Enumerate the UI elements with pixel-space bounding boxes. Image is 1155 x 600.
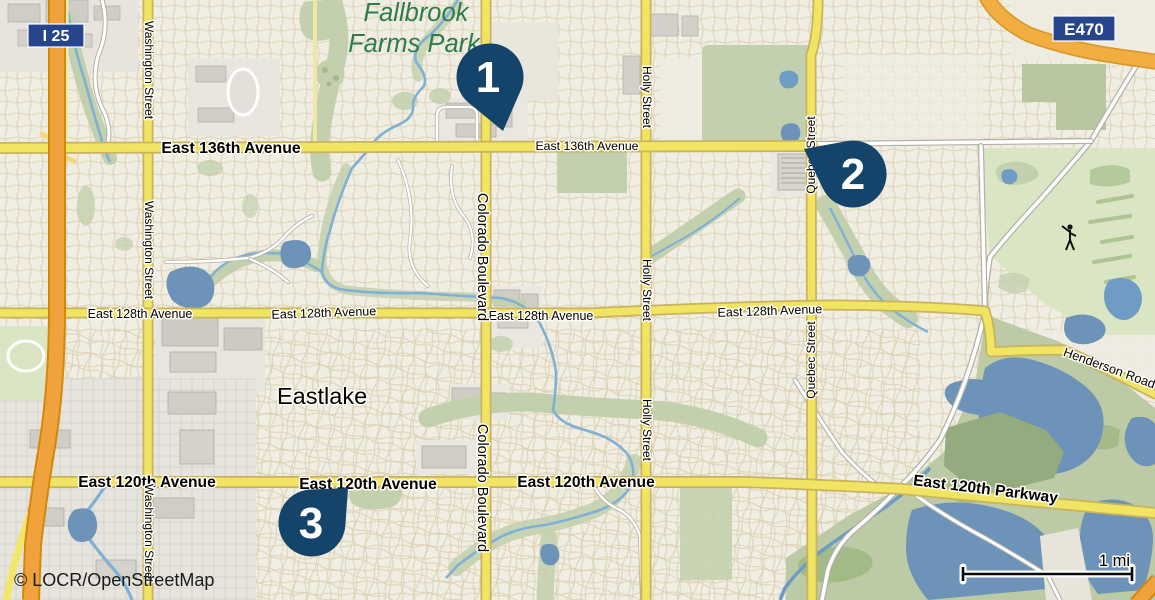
svg-text:1 mi: 1 mi [1099, 552, 1130, 570]
svg-text:Holly Street: Holly Street [640, 399, 654, 462]
svg-text:3: 3 [299, 499, 323, 548]
svg-text:Washington Street: Washington Street [142, 484, 156, 583]
svg-text:1: 1 [476, 53, 500, 102]
svg-text:2: 2 [841, 150, 865, 199]
svg-text:East 128th Avenue: East 128th Avenue [88, 307, 193, 321]
svg-text:Eastlake: Eastlake [277, 383, 367, 409]
svg-text:East 136th Avenue: East 136th Avenue [161, 140, 301, 157]
svg-text:East 120th Avenue: East 120th Avenue [517, 474, 655, 491]
svg-text:East 136th Avenue: East 136th Avenue [535, 139, 638, 153]
svg-text:East 128th Avenue: East 128th Avenue [489, 309, 594, 323]
svg-text:Colorado Boulevard: Colorado Boulevard [474, 424, 490, 552]
svg-text:I 25: I 25 [43, 28, 70, 45]
svg-text:Holly Street: Holly Street [640, 66, 654, 129]
svg-text:Quebec Street: Quebec Street [804, 321, 818, 399]
svg-text:Holly Street: Holly Street [640, 259, 654, 322]
svg-text:Fallbrook: Fallbrook [364, 0, 470, 27]
svg-text:© LOCR/OpenStreetMap: © LOCR/OpenStreetMap [14, 570, 214, 590]
svg-text:Washington Street: Washington Street [142, 21, 156, 120]
svg-text:Washington Street: Washington Street [142, 201, 156, 300]
svg-text:E470: E470 [1064, 20, 1104, 39]
svg-text:Colorado Boulevard: Colorado Boulevard [474, 193, 490, 321]
svg-text:Farms Park: Farms Park [348, 30, 481, 58]
